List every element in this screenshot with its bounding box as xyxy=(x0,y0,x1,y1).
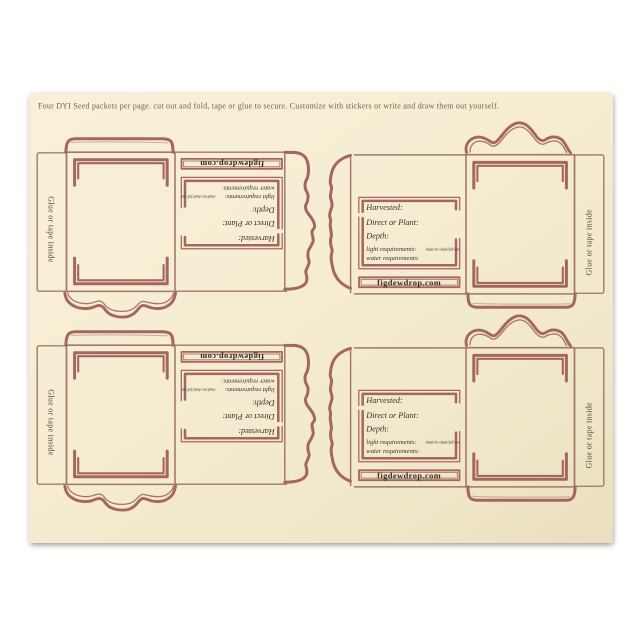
svg-text:Glue or tape inside: Glue or tape inside xyxy=(585,209,594,275)
svg-text:Glue or tape inside: Glue or tape inside xyxy=(585,402,594,468)
svg-text:Four DYI Seed packets per page: Four DYI Seed packets per page. cut out … xyxy=(38,101,499,110)
svg-text:Glue or tape inside: Glue or tape inside xyxy=(47,389,56,455)
svg-text:Glue or tape inside: Glue or tape inside xyxy=(47,196,56,262)
